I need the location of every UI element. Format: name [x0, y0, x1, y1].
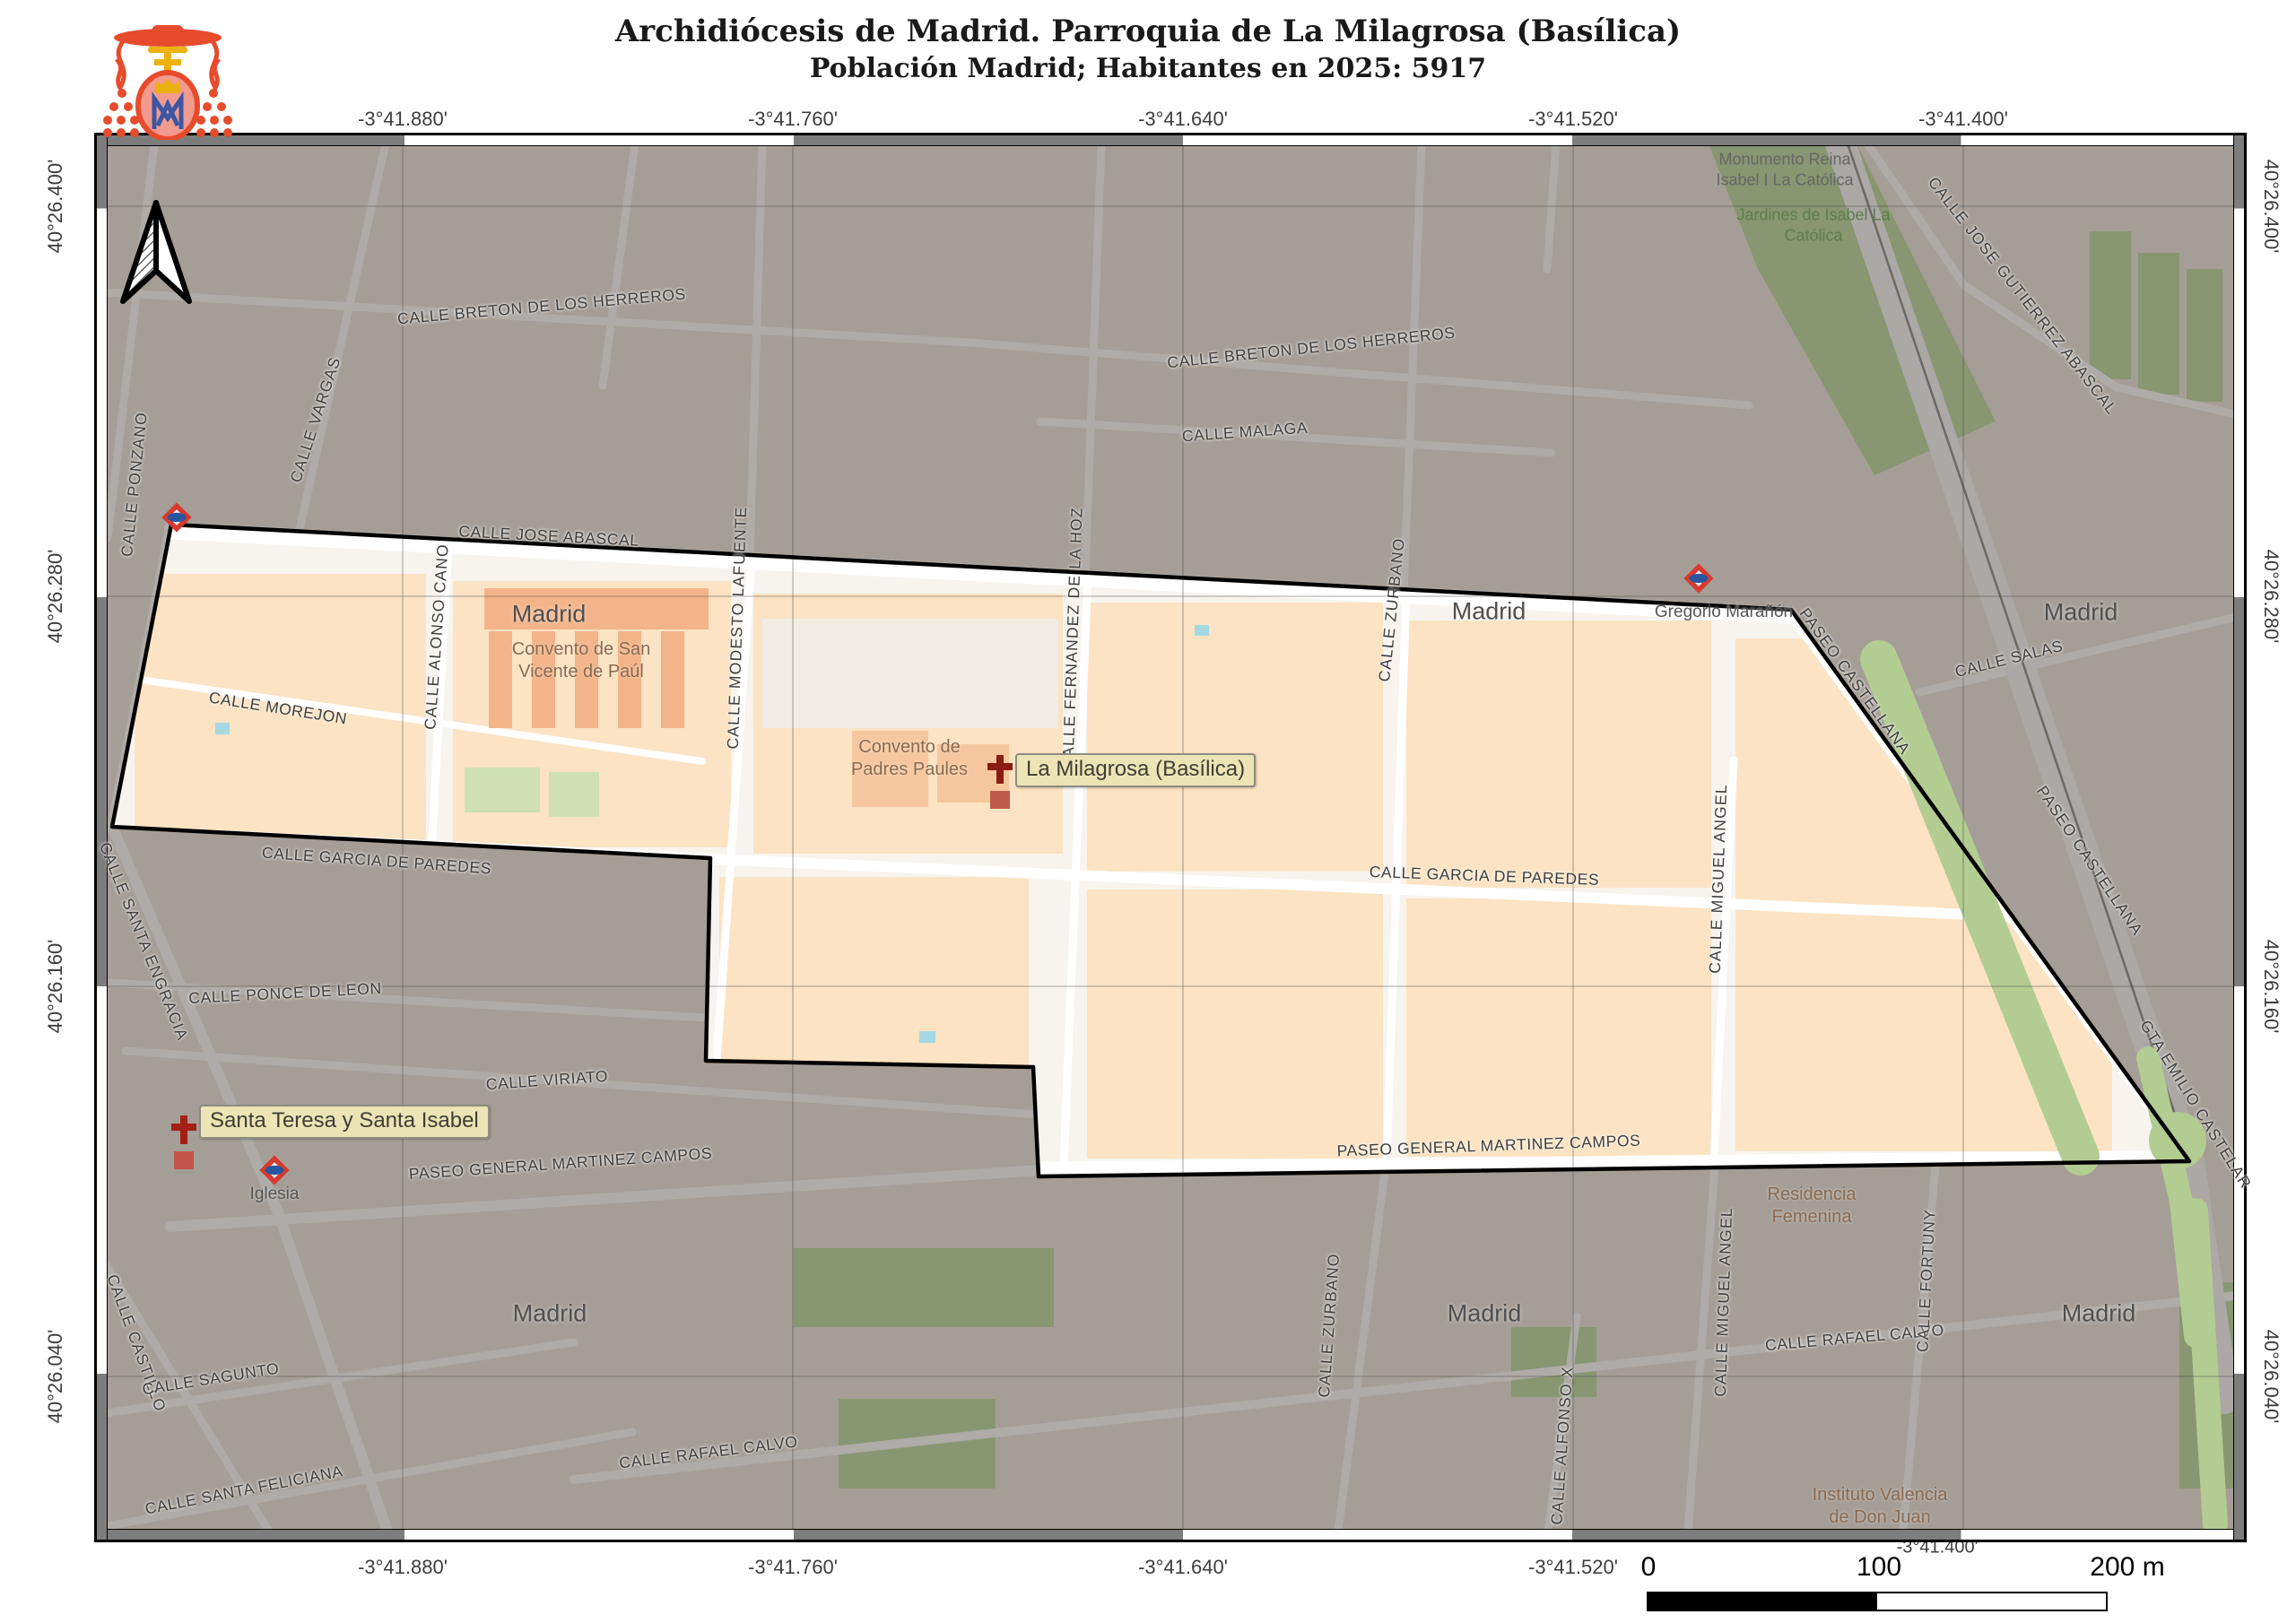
place-label-madrid-5: Madrid: [1448, 1300, 1522, 1328]
place-label-jardines-isabel: Jardines de Isabel La Católica: [1736, 205, 1890, 247]
scalebar-filled-segment: [1648, 1593, 1877, 1610]
place-label-convento-san-vicente: Convento de San Vicente de Paúl: [512, 638, 651, 683]
place-label-madrid-4: Madrid: [513, 1300, 587, 1328]
axis-right-3: 40°26.160': [2259, 940, 2283, 1034]
place-label-residencia-femenina: Residencia Femenina: [1768, 1184, 1857, 1228]
scalebar: [1647, 1592, 2108, 1611]
place-label-convento-padres-paules: Convento de Padres Paules: [851, 736, 968, 781]
axis-right-2: 40°26.280': [2259, 550, 2283, 644]
axis-bottom-4: -3°41.520': [1528, 1556, 1618, 1579]
axis-top-3: -3°41.640': [1138, 108, 1228, 131]
axis-bottom-1: -3°41.880': [358, 1556, 448, 1579]
church-icon-santa-teresa: [167, 1114, 201, 1171]
scalebar-label-200m: 200 m: [2090, 1552, 2164, 1583]
place-label-instituto-valencia: Instituto Valencia de Don Juan: [1813, 1484, 1948, 1529]
place-label-madrid-6: Madrid: [2062, 1300, 2136, 1328]
axis-top-4: -3°41.520': [1528, 108, 1618, 131]
neatline-right: [2233, 135, 2245, 1541]
metro-icon-gregorio-maranon: [1681, 560, 1717, 596]
axis-bottom-2: -3°41.760': [748, 1556, 838, 1579]
axis-bottom-3: -3°41.640': [1138, 1556, 1228, 1579]
axis-top-5: -3°41.400': [1918, 108, 2008, 131]
diocese-coat-of-arms-logo: [100, 5, 235, 140]
station-label-gregorio-maranon: Gregorio Marañón: [1655, 603, 1793, 622]
axis-top-1: -3°41.880': [358, 108, 448, 131]
axis-left-2: 40°26.280': [44, 550, 67, 644]
galero-hat-icon: [114, 25, 222, 47]
coat-of-arms-icon: [100, 5, 235, 140]
axis-left-4: 40°26.040': [44, 1330, 67, 1424]
page-title: Archidiócesis de Madrid. Parroquia de La…: [0, 13, 2296, 51]
axis-left-1: 40°26.400': [44, 160, 67, 254]
map-document: { "header": { "title": "Archidiócesis de…: [0, 0, 2296, 1623]
church-icon-milagrosa: [983, 753, 1017, 811]
place-label-monumento-reina-isabel: Monumento Reina Isabel I La Católica: [1716, 150, 1853, 192]
neatline-left: [96, 135, 108, 1541]
scalebar-label-0: 0: [1641, 1552, 1657, 1583]
scalebar-label-100: 100: [1857, 1552, 1901, 1583]
callout-milagrosa: La Milagrosa (Basílica): [1015, 753, 1256, 787]
place-label-madrid-1: Madrid: [512, 601, 587, 629]
map-header: Archidiócesis de Madrid. Parroquia de La…: [0, 13, 2296, 86]
place-label-madrid-3: Madrid: [2044, 599, 2118, 627]
page-subtitle: Población Madrid; Habitantes en 2025: 59…: [0, 51, 2296, 86]
axis-top-2: -3°41.760': [748, 108, 838, 131]
axis-right-4: 40°26.040': [2259, 1330, 2283, 1424]
place-label-madrid-2: Madrid: [1452, 598, 1526, 626]
callout-santa-teresa: Santa Teresa y Santa Isabel: [199, 1105, 490, 1139]
north-arrow-icon: [115, 199, 197, 308]
neatline-bottom: [96, 1529, 2245, 1541]
metro-icon-iglesia: [257, 1152, 292, 1188]
axis-right-1: 40°26.400': [2259, 160, 2283, 254]
neatline-top: [96, 135, 2245, 146]
axis-left-3: 40°26.160': [44, 940, 67, 1034]
metro-icon-jose-abascal: [159, 499, 195, 535]
